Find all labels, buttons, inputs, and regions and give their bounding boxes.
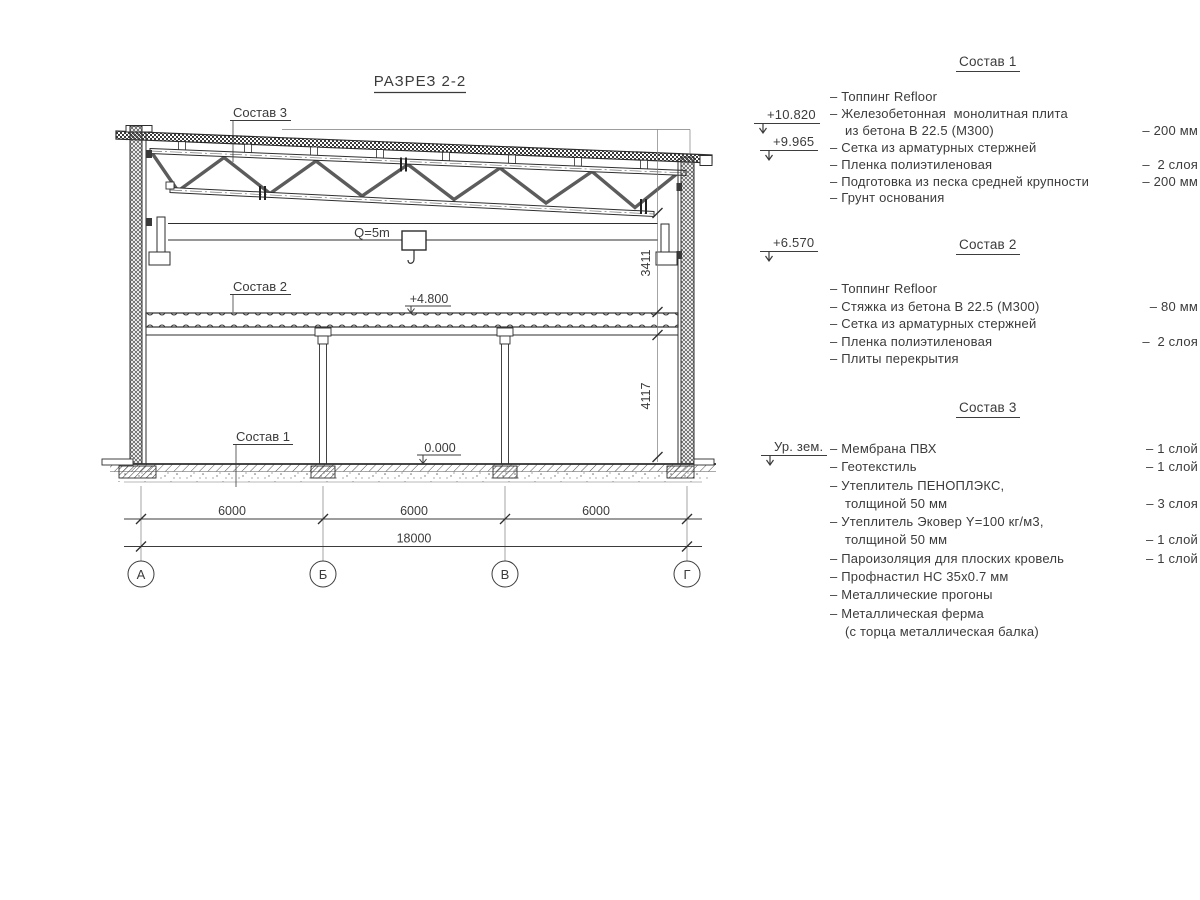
crane-hook bbox=[408, 250, 414, 263]
composition-item-value: – 1 слой bbox=[1146, 550, 1198, 568]
composition-item: – Пленка полиэтиленовая– 2 слоя bbox=[830, 333, 1198, 351]
composition-item-text: – Пароизоляция для плоских кровель bbox=[830, 550, 1064, 568]
composition-item-value: – 2 слоя bbox=[1142, 157, 1198, 174]
crane-capacity-label: Q=5m bbox=[354, 225, 390, 240]
elevation-value: +9.965 bbox=[760, 135, 818, 151]
composition-item: – Утеплитель Эковер Y=100 кг/м3, bbox=[830, 513, 1198, 531]
composition-list: – Топпинг Refloor– Железобетонная моноли… bbox=[830, 89, 1198, 207]
composition-item-text: – Геотекстиль bbox=[830, 458, 917, 476]
composition-list: – Топпинг Refloor– Стяжка из бетона В 22… bbox=[830, 280, 1198, 368]
composition-item: – Пароизоляция для плоских кровель– 1 сл… bbox=[830, 550, 1198, 568]
dim-bay3: 6000 bbox=[582, 504, 610, 518]
composition-leaders: Состав 3 Состав 2 Состав 1 bbox=[230, 105, 293, 487]
composition-item: – Утеплитель ПЕНОПЛЭКС, bbox=[830, 477, 1198, 495]
composition-item-text: – Профнастил НС 35х0.7 мм bbox=[830, 568, 1009, 586]
elevation-mark-6570: +6.570 bbox=[760, 236, 818, 264]
composition-item: – Плиты перекрытия bbox=[830, 350, 1198, 368]
composition-item-text: – Железобетонная монолитная плита bbox=[830, 106, 1068, 123]
interior-columns bbox=[315, 328, 513, 464]
axis-bubbles: А Б В Г bbox=[128, 561, 700, 587]
composition-item: – Топпинг Refloor bbox=[830, 89, 1198, 106]
composition-item-value: – 1 слой bbox=[1146, 440, 1198, 458]
composition-item: – Сетка из арматурных стержней bbox=[830, 140, 1198, 157]
bridge-crane: Q=5m bbox=[149, 217, 677, 265]
composition-item-value: – 200 мм bbox=[1142, 174, 1198, 191]
dim-bay1: 6000 bbox=[218, 504, 246, 518]
composition-item: (с торца металлическая балка) bbox=[830, 623, 1198, 641]
composition-item-text: – Топпинг Refloor bbox=[830, 89, 937, 106]
axis-b: Б bbox=[319, 567, 328, 582]
drawing-title: РАЗРЕЗ 2-2 bbox=[374, 73, 467, 93]
dim-bay2: 6000 bbox=[400, 504, 428, 518]
level-0000: 0.000 bbox=[424, 441, 455, 455]
composition-2-section: Состав 2 – Топпинг Refloor– Стяжка из бе… bbox=[830, 237, 1198, 368]
composition-item-text: – Металлическая ферма bbox=[830, 605, 984, 623]
composition-item: – Геотекстиль– 1 слой bbox=[830, 458, 1198, 476]
composition-item: – Металлические прогоны bbox=[830, 586, 1198, 604]
composition-item-text: – Мембрана ПВХ bbox=[830, 440, 937, 458]
composition-item-value: – 200 мм bbox=[1142, 123, 1198, 140]
composition-heading-row: Состав 1 bbox=[830, 54, 1198, 76]
elevation-mark-ground: Ур. зем. bbox=[761, 440, 827, 468]
composition-item-text: – Пленка полиэтиленовая bbox=[830, 157, 992, 174]
composition-item: – Грунт основания bbox=[830, 190, 1198, 207]
composition-item: толщиной 50 мм– 3 слоя bbox=[830, 495, 1198, 513]
axis-v: В bbox=[501, 567, 510, 582]
composition-item: толщиной 50 мм– 1 слой bbox=[830, 531, 1198, 549]
composition-item-text: толщиной 50 мм bbox=[830, 495, 947, 513]
composition-list: – Мембрана ПВХ– 1 слой– Геотекстиль– 1 с… bbox=[830, 440, 1198, 641]
vertical-dimension: 3411 4117 bbox=[639, 130, 663, 463]
composition-item-text: – Стяжка из бетона В 22.5 (М300) bbox=[830, 298, 1040, 316]
composition-heading-row: Состав 3 bbox=[830, 400, 1198, 422]
composition-3-section: Состав 3 – Мембрана ПВХ– 1 слой– Геотекс… bbox=[830, 400, 1198, 641]
composition-item-text: – Металлические прогоны bbox=[830, 586, 993, 604]
composition-item-text: – Утеплитель ПЕНОПЛЭКС, bbox=[830, 477, 1004, 495]
composition-item-text: – Пленка полиэтиленовая bbox=[830, 333, 992, 351]
blueprint-page: РАЗРЕЗ 2-2 bbox=[0, 0, 1200, 900]
elevation-value: +6.570 bbox=[760, 236, 818, 252]
dim-total: 18000 bbox=[397, 532, 432, 546]
elevation-value: Ур. зем. bbox=[761, 440, 827, 456]
dim-3411: 3411 bbox=[639, 250, 653, 277]
composition-item-value: – 2 слоя bbox=[1142, 333, 1198, 351]
crane-trolley bbox=[402, 231, 426, 250]
elevation-arrow-icon bbox=[760, 150, 778, 163]
composition-item: – Металлическая ферма bbox=[830, 605, 1198, 623]
label-sostav-3: Состав 3 bbox=[233, 105, 287, 120]
label-sostav-2: Состав 2 bbox=[233, 279, 287, 294]
composition-heading: Состав 1 bbox=[956, 54, 1020, 72]
axis-g: Г bbox=[683, 567, 690, 582]
elevation-value: +10.820 bbox=[754, 108, 820, 124]
elevation-arrow-icon bbox=[761, 455, 779, 468]
elevation-mark-9965: +9.965 bbox=[760, 135, 818, 163]
horizontal-dimensions: 6000 6000 6000 18000 А Б В Г bbox=[124, 486, 702, 587]
crane-bracket-left bbox=[157, 217, 165, 252]
elevation-arrow-icon bbox=[760, 251, 778, 264]
axis-a: А bbox=[137, 567, 146, 582]
composition-1-section: Состав 1 – Топпинг Refloor– Железобетонн… bbox=[830, 54, 1198, 207]
right-wall bbox=[677, 157, 695, 464]
composition-item: – Топпинг Refloor bbox=[830, 280, 1198, 298]
label-sostav-1: Состав 1 bbox=[236, 429, 290, 444]
composition-item: – Мембрана ПВХ– 1 слой bbox=[830, 440, 1198, 458]
composition-item-text: – Сетка из арматурных стержней bbox=[830, 140, 1036, 157]
composition-item-value: – 3 слоя bbox=[1146, 495, 1198, 513]
elevation-mark-10820: +10.820 bbox=[754, 108, 820, 136]
composition-item-text: – Подготовка из песка средней крупности bbox=[830, 174, 1089, 191]
left-wall bbox=[130, 126, 152, 464]
composition-item-text: из бетона В 22.5 (М300) bbox=[830, 123, 994, 140]
section-drawing: РАЗРЕЗ 2-2 bbox=[0, 0, 760, 660]
composition-item: из бетона В 22.5 (М300)– 200 мм bbox=[830, 123, 1198, 140]
composition-item: – Сетка из арматурных стержней bbox=[830, 315, 1198, 333]
floor-slab bbox=[146, 313, 678, 335]
composition-item-text: (с торца металлическая балка) bbox=[830, 623, 1039, 641]
composition-heading-row: Состав 2 bbox=[830, 237, 1198, 259]
composition-item: – Профнастил НС 35х0.7 мм bbox=[830, 568, 1198, 586]
composition-heading: Состав 3 bbox=[956, 400, 1020, 418]
dim-4117: 4117 bbox=[639, 383, 653, 410]
ground-slab bbox=[102, 459, 716, 482]
composition-item-text: – Сетка из арматурных стержней bbox=[830, 315, 1036, 333]
crane-bracket-right bbox=[661, 224, 669, 252]
composition-item-text: – Утеплитель Эковер Y=100 кг/м3, bbox=[830, 513, 1044, 531]
composition-item: – Подготовка из песка средней крупности–… bbox=[830, 174, 1198, 191]
composition-item-value: – 1 слой bbox=[1146, 531, 1198, 549]
composition-item-text: толщиной 50 мм bbox=[830, 531, 947, 549]
composition-item: – Стяжка из бетона В 22.5 (М300)– 80 мм bbox=[830, 298, 1198, 316]
composition-item: – Железобетонная монолитная плита bbox=[830, 106, 1198, 123]
level-4800: +4.800 bbox=[410, 292, 449, 306]
composition-item-value: – 1 слой bbox=[1146, 458, 1198, 476]
composition-item-value: – 80 мм bbox=[1150, 298, 1198, 316]
drawing-title-text: РАЗРЕЗ 2-2 bbox=[374, 73, 467, 90]
composition-item-text: – Плиты перекрытия bbox=[830, 350, 959, 368]
composition-heading: Состав 2 bbox=[956, 237, 1020, 255]
composition-item: – Пленка полиэтиленовая– 2 слоя bbox=[830, 157, 1198, 174]
composition-item-text: – Топпинг Refloor bbox=[830, 280, 937, 298]
composition-item-text: – Грунт основания bbox=[830, 190, 945, 207]
